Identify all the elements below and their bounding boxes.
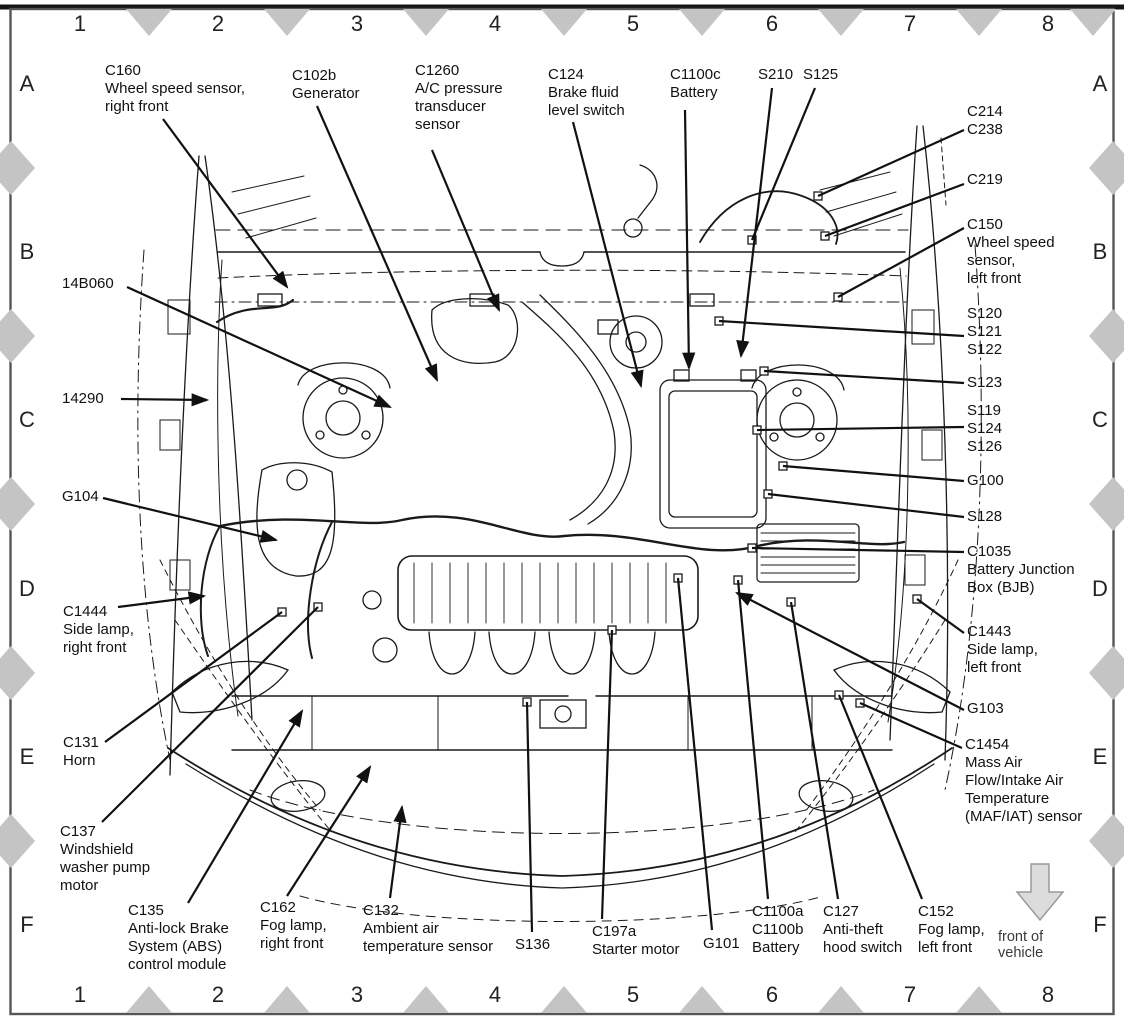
callout-line: C127 [823, 903, 902, 921]
callout-14B060: 14B060 [62, 275, 114, 293]
callout-S136: S136 [515, 936, 550, 954]
callout-line: Ambient air [363, 920, 493, 938]
callout-line: C197a [592, 923, 680, 941]
grid-marker-top [818, 9, 864, 36]
grid-marker-left [0, 646, 35, 700]
leader-C162 [287, 767, 370, 896]
callout-line: Battery Junction [967, 561, 1075, 579]
callout-G101: G101 [703, 935, 740, 953]
grid-marker-right [1089, 814, 1124, 868]
callout-line: Flow/Intake Air [965, 772, 1082, 790]
leader-C135 [188, 711, 302, 903]
callout-line: C238 [967, 121, 1003, 139]
callout-line: motor [60, 877, 150, 895]
grid-marker-top [403, 9, 449, 36]
callout-line: temperature sensor [363, 938, 493, 956]
leader-S210 [741, 88, 772, 356]
callout-14290: 14290 [62, 390, 104, 408]
callout-line: A/C pressure [415, 80, 503, 98]
grid-marker-bottom [264, 986, 310, 1013]
grid-marker-bottom [126, 986, 172, 1013]
callout-C124: C124Brake fluidlevel switch [548, 66, 625, 120]
callout-line: C1260 [415, 62, 503, 80]
grid-col-label-top: 4 [489, 11, 501, 37]
callout-C160: C160Wheel speed sensor,right front [105, 62, 245, 116]
leader-C137 [102, 607, 318, 822]
callout-C197a: C197aStarter motor [592, 923, 680, 959]
callout-line: C1443 [967, 623, 1038, 641]
callout-G103: G103 [967, 700, 1004, 718]
callout-line: S210 [758, 66, 793, 84]
grid-row-label-right: C [1092, 407, 1108, 433]
grid-marker-right [1089, 309, 1124, 363]
grid-marker-right [1089, 141, 1124, 195]
grid-row-label-left: D [19, 576, 35, 602]
callout-line: G100 [967, 472, 1004, 490]
callout-C132: C132Ambient airtemperature sensor [363, 902, 493, 956]
callout-line: C132 [363, 902, 493, 920]
callout-line: Fog lamp, [918, 921, 985, 939]
callout-line: Battery [752, 939, 803, 957]
leader-lines [102, 88, 964, 932]
callout-C102b: C102bGenerator [292, 67, 360, 103]
callout-C135: C135Anti-lock BrakeSystem (ABS)control m… [128, 902, 229, 974]
engine-compartment-component-location-diagram: 1122334455667788AABBCCDDEEFF C160Wheel s… [0, 0, 1124, 1026]
callout-C1260: C1260A/C pressuretransducersensor [415, 62, 503, 134]
callout-C1100a-C1100b: C1100aC1100bBattery [752, 903, 803, 957]
grid-marker-top [679, 9, 725, 36]
grid-marker-left [0, 814, 35, 868]
callout-line: Wheel speed [967, 234, 1055, 252]
grid-col-label-bottom: 4 [489, 982, 501, 1008]
grid-row-label-left: C [19, 407, 35, 433]
callout-line: left front [918, 939, 985, 957]
callout-line: S119 [967, 402, 1002, 420]
grid-marker-bottom [403, 986, 449, 1013]
callout-line: Side lamp, [967, 641, 1038, 659]
callout-line: System (ABS) [128, 938, 229, 956]
callout-line: C1100a [752, 903, 803, 921]
grid-row-label-right: B [1093, 239, 1108, 265]
callout-line: Box (BJB) [967, 579, 1075, 597]
leader-C150 [838, 228, 964, 297]
callout-C152: C152Fog lamp,left front [918, 903, 985, 957]
grid-marker-left [0, 309, 35, 363]
grid-col-label-bottom: 2 [212, 982, 224, 1008]
callout-line: level switch [548, 102, 625, 120]
grid-col-label-bottom: 7 [904, 982, 916, 1008]
callout-line: C214 [967, 103, 1003, 121]
callout-line: right front [260, 935, 327, 953]
callout-G100: G100 [967, 472, 1004, 490]
callout-line: C137 [60, 823, 150, 841]
callout-line: right front [105, 98, 245, 116]
callout-line: left front [967, 270, 1055, 288]
callout-line: S136 [515, 936, 550, 954]
callout-line: C131 [63, 734, 99, 752]
leader-14290 [121, 399, 207, 400]
callout-line: Starter motor [592, 941, 680, 959]
callout-line: washer pump [60, 859, 150, 877]
leader-C214-C238 [818, 130, 964, 196]
callout-S125: S125 [803, 66, 838, 84]
callout-C131: C131Horn [63, 734, 99, 770]
callout-line: C219 [967, 171, 1003, 189]
callout-line: C124 [548, 66, 625, 84]
callout-line: C160 [105, 62, 245, 80]
callout-C162: C162Fog lamp,right front [260, 899, 327, 953]
engine-bay-line-art [138, 126, 981, 922]
callout-line: S126 [967, 438, 1002, 456]
callout-C214-C238: C214C238 [967, 103, 1003, 139]
callout-line: C162 [260, 899, 327, 917]
callout-line: G103 [967, 700, 1004, 718]
grid-col-label-bottom: 6 [766, 982, 778, 1008]
grid-col-label-top: 8 [1042, 11, 1054, 37]
grid-col-label-bottom: 3 [351, 982, 363, 1008]
grid-marker-top [1070, 9, 1116, 36]
callout-S120-S121-S122: S120S121S122 [967, 305, 1002, 359]
callout-C1100c: C1100cBattery [670, 66, 721, 102]
callout-line: S121 [967, 323, 1002, 341]
callout-line: S120 [967, 305, 1002, 323]
callout-line: 14B060 [62, 275, 114, 293]
grid-col-label-top: 5 [627, 11, 639, 37]
grid-row-label-left: F [20, 912, 33, 938]
grid-row-label-right: E [1093, 744, 1108, 770]
callout-C219: C219 [967, 171, 1003, 189]
grid-row-label-left: B [20, 239, 35, 265]
grid-row-label-right: A [1093, 71, 1108, 97]
grid-marker-left [0, 477, 35, 531]
callout-line: C1035 [967, 543, 1075, 561]
leader-G101 [678, 578, 712, 930]
callout-line: 14290 [62, 390, 104, 408]
callout-line: S128 [967, 508, 1002, 526]
grid-marker-top [126, 9, 172, 36]
grid-col-label-top: 2 [212, 11, 224, 37]
leader-S120-S121-S122 [719, 321, 964, 336]
grid-marker-right [1089, 477, 1124, 531]
callout-S119-S124-S126: S119S124S126 [967, 402, 1002, 456]
callout-line: (MAF/IAT) sensor [965, 808, 1082, 826]
diagram-canvas [0, 0, 1124, 1026]
callout-C150: C150Wheel speedsensor,left front [967, 216, 1055, 288]
callout-line: hood switch [823, 939, 902, 957]
callout-G104: G104 [62, 488, 99, 506]
callout-line: Windshield [60, 841, 150, 859]
callout-line: transducer [415, 98, 503, 116]
front-of-vehicle-label: front of vehicle [998, 929, 1082, 961]
leader-S136 [527, 702, 532, 932]
callout-line: Side lamp, [63, 621, 134, 639]
leader-C1100a-C1100b [738, 580, 768, 899]
grid-col-label-top: 6 [766, 11, 778, 37]
callout-line: left front [967, 659, 1038, 677]
callout-line: C1100b [752, 921, 803, 939]
leader-C1100c [685, 110, 689, 368]
callout-line: S123 [967, 374, 1002, 392]
callout-line: right front [63, 639, 134, 657]
callout-S128: S128 [967, 508, 1002, 526]
leader-C1443 [917, 599, 964, 633]
grid-col-label-bottom: 1 [74, 982, 86, 1008]
grid-col-label-bottom: 8 [1042, 982, 1054, 1008]
callout-S123: S123 [967, 374, 1002, 392]
grid-row-label-right: F [1093, 912, 1106, 938]
callout-line: Mass Air [965, 754, 1082, 772]
callout-line: sensor, [967, 252, 1055, 270]
callout-line: C1444 [63, 603, 134, 621]
callout-line: G104 [62, 488, 99, 506]
callout-line: C135 [128, 902, 229, 920]
grid-markers [0, 9, 1124, 1013]
leader-C219 [825, 184, 964, 236]
callout-line: S122 [967, 341, 1002, 359]
callout-C137: C137Windshieldwasher pumpmotor [60, 823, 150, 895]
callout-C1444: C1444Side lamp,right front [63, 603, 134, 657]
callout-line: Horn [63, 752, 99, 770]
callout-C1035: C1035Battery JunctionBox (BJB) [967, 543, 1075, 597]
grid-row-label-right: D [1092, 576, 1108, 602]
callout-line: S125 [803, 66, 838, 84]
grid-marker-right [1089, 646, 1124, 700]
callout-line: Wheel speed sensor, [105, 80, 245, 98]
callout-line: Brake fluid [548, 84, 625, 102]
grid-marker-left [0, 141, 35, 195]
grid-marker-top [541, 9, 587, 36]
leader-G100 [783, 466, 964, 481]
leader-C102b [317, 106, 437, 380]
leader-G103 [737, 593, 964, 710]
grid-row-label-left: A [20, 71, 35, 97]
callout-line: C152 [918, 903, 985, 921]
callout-line: C150 [967, 216, 1055, 234]
callout-line: sensor [415, 116, 503, 134]
callout-S210: S210 [758, 66, 793, 84]
grid-col-label-top: 3 [351, 11, 363, 37]
grid-col-label-top: 7 [904, 11, 916, 37]
callout-line: control module [128, 956, 229, 974]
leader-C197a [602, 630, 612, 919]
leader-S128 [768, 494, 964, 517]
callout-line: Anti-theft [823, 921, 902, 939]
grid-col-label-bottom: 5 [627, 982, 639, 1008]
leader-C160 [163, 119, 287, 287]
grid-marker-top [264, 9, 310, 36]
leader-S123 [764, 371, 964, 383]
grid-col-label-top: 1 [74, 11, 86, 37]
callout-line: Temperature [965, 790, 1082, 808]
grid-marker-bottom [956, 986, 1002, 1013]
grid-marker-top [956, 9, 1002, 36]
grid-marker-bottom [818, 986, 864, 1013]
callout-line: S124 [967, 420, 1002, 438]
grid-marker-bottom [679, 986, 725, 1013]
callout-line: Fog lamp, [260, 917, 327, 935]
callout-line: C1454 [965, 736, 1082, 754]
callout-line: Anti-lock Brake [128, 920, 229, 938]
leader-S125 [752, 88, 815, 240]
callout-line: C1100c [670, 66, 721, 84]
grid-row-label-left: E [20, 744, 35, 770]
callout-line: C102b [292, 67, 360, 85]
callout-C1454: C1454Mass AirFlow/Intake AirTemperature(… [965, 736, 1082, 826]
diagram-frame [0, 7, 1124, 1014]
front-of-vehicle-arrow [1017, 864, 1063, 920]
callout-line: Battery [670, 84, 721, 102]
callout-C1443: C1443Side lamp,left front [967, 623, 1038, 677]
grid-marker-bottom [541, 986, 587, 1013]
callout-C127: C127Anti-thefthood switch [823, 903, 902, 957]
leader-C1035 [752, 548, 964, 552]
callout-line: Generator [292, 85, 360, 103]
callout-line: G101 [703, 935, 740, 953]
leader-G104 [103, 498, 276, 540]
